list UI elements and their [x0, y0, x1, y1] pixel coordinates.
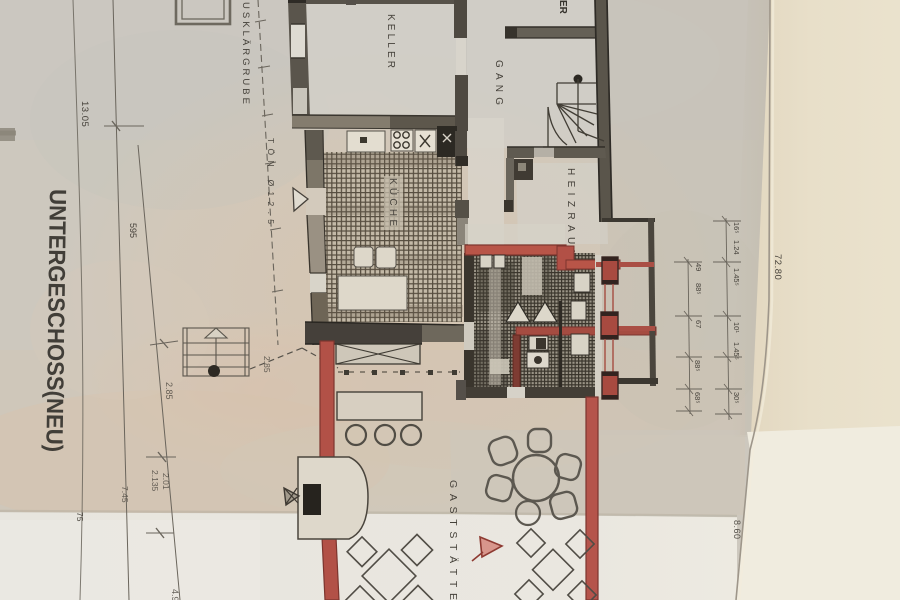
svg-text:USKLÄRGRUBE: USKLÄRGRUBE: [240, 2, 251, 104]
svg-text:595: 595: [128, 223, 138, 238]
svg-text:2.85: 2.85: [262, 356, 272, 373]
svg-text:75: 75: [75, 512, 85, 522]
svg-text:8.60: 8.60: [732, 520, 742, 540]
svg-text:7.45: 7.45: [120, 486, 130, 503]
svg-text:UNTERGESCHOSS(NEU): UNTERGESCHOSS(NEU): [41, 189, 71, 452]
svg-text:1.24: 1.24: [732, 240, 741, 255]
svg-text:67: 67: [694, 320, 703, 328]
svg-text:10¹: 10¹: [732, 322, 741, 333]
svg-text:1.45⁵: 1.45⁵: [732, 268, 741, 286]
svg-text:2.135: 2.135: [150, 470, 160, 492]
svg-text:ER: ER: [557, 0, 568, 15]
svg-text:2.01: 2.01: [161, 473, 171, 490]
svg-text:68⁵: 68⁵: [693, 392, 702, 403]
svg-text:TÖN Ø12.5: TÖN Ø12.5: [266, 138, 276, 224]
svg-text:72.80: 72.80: [772, 254, 783, 280]
svg-text:4.95: 4.95: [170, 589, 180, 600]
svg-text:1.45⁵: 1.45⁵: [732, 342, 741, 360]
svg-text:88⁵: 88⁵: [693, 360, 702, 371]
svg-text:16⁵: 16⁵: [732, 222, 741, 233]
svg-text:49: 49: [694, 263, 703, 271]
svg-text:30⁵: 30⁵: [732, 392, 741, 403]
svg-text:13.05: 13.05: [79, 101, 90, 127]
svg-text:88⁵: 88⁵: [694, 283, 703, 294]
svg-text:2.85: 2.85: [164, 382, 174, 400]
